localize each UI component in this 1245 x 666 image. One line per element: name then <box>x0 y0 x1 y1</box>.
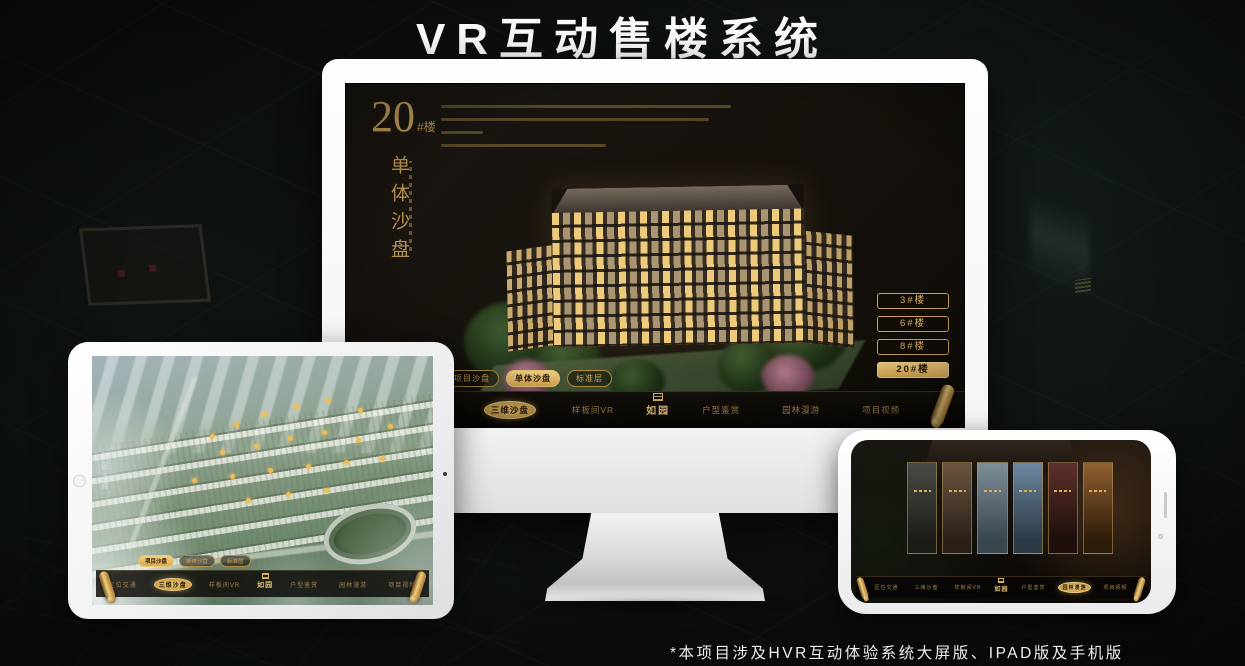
block-number-suffix: #楼 <box>417 120 436 134</box>
tablet-screen: 园区三路 项目沙盘单体沙盘标准层 区位交通三维沙盘样板间VR 如园 户型鉴赏园林… <box>92 356 433 605</box>
seal-icon <box>998 578 1004 583</box>
brand-logo-text: 如园 <box>257 580 273 590</box>
scroll-icon[interactable] <box>929 383 956 427</box>
nav-item[interactable]: 项目视频 <box>1101 583 1131 592</box>
footnote: *本项目涉及HVR互动体验系统大屏版、IPAD版及手机版 <box>670 641 1124 663</box>
navbar-left-group: 区位交通三维沙盘样板间VR <box>871 583 984 592</box>
block-number: 20 <box>371 92 415 141</box>
nav-item[interactable]: 三维沙盘 <box>154 578 192 591</box>
building-window-grid <box>552 209 806 347</box>
gallery-panel[interactable] <box>977 462 1007 554</box>
gallery-panel[interactable] <box>1048 462 1078 554</box>
floor-button-group: 3#楼6#楼8#楼20#楼 <box>877 293 949 378</box>
brand-logo-text: 如园 <box>994 584 1008 593</box>
nav-item[interactable]: 户型鉴赏 <box>696 402 746 418</box>
tablet-navbar: 区位交通三维沙盘样板间VR 如园 户型鉴赏园林漫游项目视频 <box>96 570 429 597</box>
monitor-stand-shadow <box>512 598 802 612</box>
nav-item[interactable]: 户型鉴赏 <box>286 579 322 590</box>
page-title: VR互动售楼系统 <box>0 3 1245 67</box>
camera-icon <box>443 472 447 476</box>
sub-tab[interactable]: 标准层 <box>567 370 612 387</box>
nav-item[interactable]: 项目视频 <box>856 402 906 418</box>
floor-button[interactable]: 20#楼 <box>877 362 949 378</box>
stage: VR互动售楼系统 20#楼 单体沙盘 <box>0 0 1245 666</box>
gallery-panel[interactable] <box>942 462 972 554</box>
building-main-block <box>551 185 806 347</box>
nav-item[interactable]: 三维沙盘 <box>911 583 941 592</box>
floor-button[interactable]: 8#楼 <box>877 339 949 355</box>
navbar-right-group: 户型鉴赏园林漫游项目视频 <box>696 402 906 418</box>
navbar-left-group: 区位交通三维沙盘样板间VR <box>105 578 244 591</box>
nav-item[interactable]: 样板间VR <box>952 583 985 592</box>
phone-screen: 区位交通三维沙盘样板间VR 如园 户型鉴赏园林漫游项目视频 <box>851 440 1151 603</box>
camera-icon <box>1158 534 1163 539</box>
nav-item[interactable]: 户型鉴赏 <box>1018 583 1048 592</box>
nav-item[interactable]: 区位交通 <box>871 583 901 592</box>
subtitle-decoration <box>409 161 412 251</box>
road-label: 园区三路 <box>99 452 109 492</box>
nav-item[interactable]: 园林漫游 <box>776 402 826 418</box>
sub-tab[interactable]: 项目沙盘 <box>138 555 174 567</box>
nav-item[interactable]: 样板间VR <box>205 579 244 590</box>
scene-gallery <box>907 462 1113 554</box>
block-subtitle: 单体沙盘 <box>385 155 412 295</box>
floor-button[interactable]: 6#楼 <box>877 316 949 332</box>
sub-tab[interactable]: 单体沙盘 <box>506 370 560 387</box>
sub-tab[interactable]: 标准层 <box>220 555 251 567</box>
sub-tab[interactable]: 单体沙盘 <box>179 555 215 567</box>
gallery-panel[interactable] <box>907 462 937 554</box>
tablet-device: 园区三路 项目沙盘单体沙盘标准层 区位交通三维沙盘样板间VR 如园 户型鉴赏园林… <box>68 342 454 619</box>
gallery-panel[interactable] <box>1083 462 1113 554</box>
phone-navbar: 区位交通三维沙盘样板间VR 如园 户型鉴赏园林漫游项目视频 <box>856 576 1146 598</box>
block-headline: 20#楼 <box>371 95 436 139</box>
gallery-panel[interactable] <box>1013 462 1043 554</box>
floor-button[interactable]: 3#楼 <box>877 293 949 309</box>
nav-item[interactable]: 园林漫游 <box>335 579 371 590</box>
seal-icon <box>262 573 269 579</box>
monitor-sub-tabs: 项目沙盘单体沙盘标准层 <box>445 370 612 387</box>
brand-logo-text: 如园 <box>646 402 670 417</box>
nav-item[interactable]: 三维沙盘 <box>484 401 536 419</box>
brand-logo: 如园 <box>994 578 1008 593</box>
aerial-sandbox-view[interactable]: 园区三路 <box>92 356 433 605</box>
nav-item[interactable]: 样板间VR <box>566 402 620 418</box>
tablet-sub-tabs: 项目沙盘单体沙盘标准层 <box>138 555 251 567</box>
side-button[interactable] <box>1164 492 1167 518</box>
seal-icon <box>653 393 663 401</box>
home-button[interactable] <box>73 474 86 487</box>
navbar-right-group: 户型鉴赏园林漫游项目视频 <box>1018 582 1130 593</box>
brand-logo: 如园 <box>646 393 670 417</box>
cloud-fog-layer <box>92 356 433 605</box>
navbar-right-group: 户型鉴赏园林漫游项目视频 <box>286 579 420 590</box>
nav-item[interactable]: 园林漫游 <box>1058 582 1090 593</box>
phone-device: 区位交通三维沙盘样板间VR 如园 户型鉴赏园林漫游项目视频 <box>838 430 1176 614</box>
brand-logo: 如园 <box>257 573 273 590</box>
description-text-lines <box>441 105 731 157</box>
